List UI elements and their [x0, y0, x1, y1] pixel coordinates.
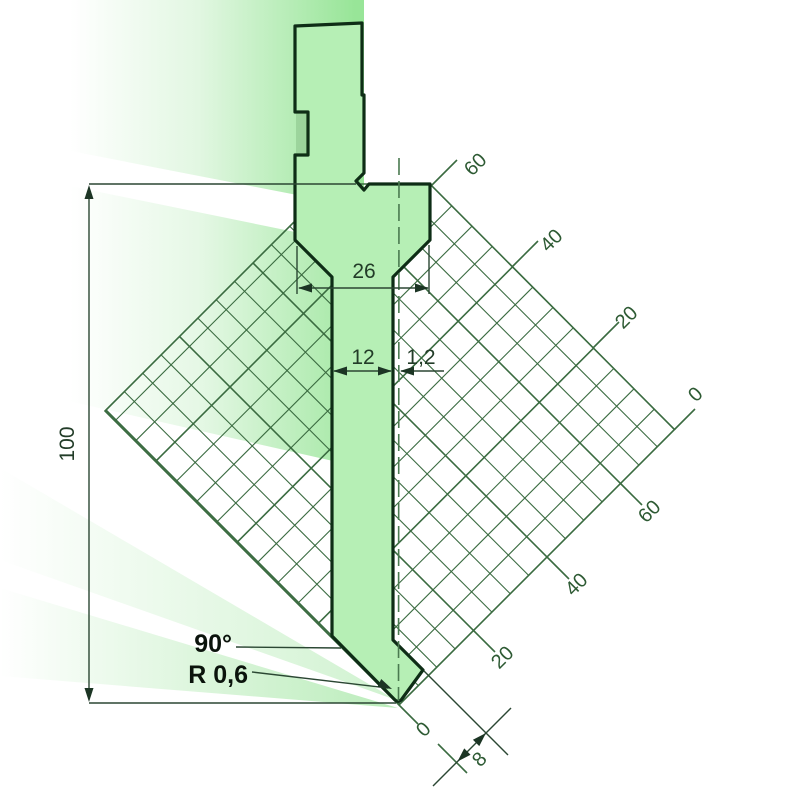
axis-upper-0: 0 — [684, 383, 707, 406]
axis-upper-40: 40 — [536, 225, 567, 256]
tip-centerline-dashed — [399, 158, 400, 701]
tick-upper-0 — [675, 409, 696, 430]
punch-tool-drawing: 100 26 12 1,2 8 90° R 0,6 60 40 20 0 60 … — [0, 0, 800, 800]
tip-angle-label: 90° — [194, 630, 232, 658]
tick-upper-40 — [512, 241, 538, 267]
dim-8-ext — [424, 671, 508, 755]
tick-lower-20 — [474, 631, 496, 653]
dim-back-offset-label: 8 — [468, 748, 491, 771]
dim-stem-width-label: 12 — [351, 346, 374, 369]
arrow-100-bottom — [85, 688, 94, 702]
tip-radius-label: R 0,6 — [188, 661, 248, 689]
tick-upper-20 — [593, 322, 619, 348]
dim-tip-offset-label: 1,2 — [406, 346, 435, 369]
tick-lower-0-a — [399, 705, 418, 724]
axis-lower-0: 0 — [412, 718, 435, 741]
axis-upper-60: 60 — [460, 149, 491, 180]
tick-lower-60 — [621, 484, 643, 506]
technical-drawing-page: 100 26 12 1,2 8 90° R 0,6 60 40 20 0 60 … — [0, 0, 800, 800]
dim-height-label: 100 — [56, 426, 79, 461]
dim-head-width-label: 26 — [352, 260, 375, 283]
leader-90deg — [236, 647, 341, 648]
tick-upper-60 — [431, 160, 457, 186]
shank-notch-shadow — [296, 113, 308, 155]
axis-upper-20: 20 — [611, 302, 642, 333]
axis-lower-40: 40 — [561, 569, 592, 600]
tick-lower-40 — [547, 557, 569, 579]
axis-lower-20: 20 — [487, 642, 518, 673]
